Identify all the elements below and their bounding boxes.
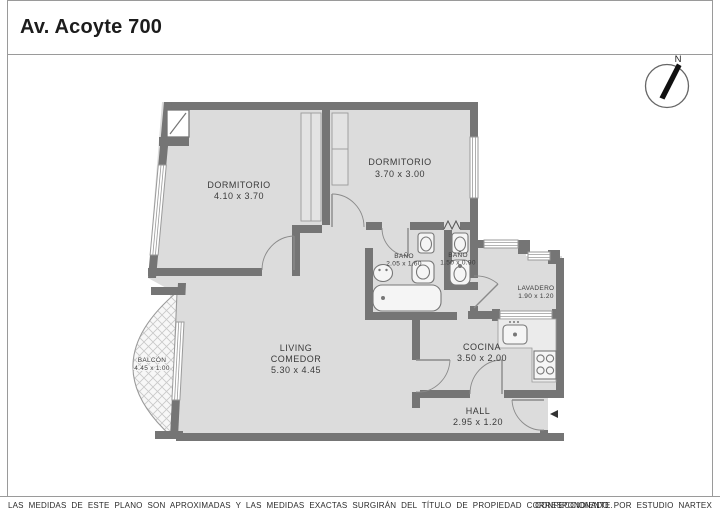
dims-hall: 2.95 x 1.20 xyxy=(453,417,503,427)
entrance-arrow-icon xyxy=(550,410,558,418)
footer-disclaimer: LAS MEDIDAS DE ESTE PLANO SON APROXIMADA… xyxy=(8,501,613,510)
sink-1 xyxy=(418,233,434,253)
dims-balcon: 4.45 x 1.00 xyxy=(134,365,170,372)
dims-lavadero: 1.90 x 1.20 xyxy=(518,293,554,300)
label-balcon: BALCÓN xyxy=(138,355,167,364)
footer-credit: CONFECCIONADO POR ESTUDIO NARTEX xyxy=(535,501,712,510)
label-dormitorio-1: DORMITORIO xyxy=(207,180,270,190)
compass-needle xyxy=(660,64,682,100)
label-living-2: COMEDOR xyxy=(271,354,322,364)
label-hall: HALL xyxy=(466,406,491,416)
dims-living: 5.30 x 4.45 xyxy=(271,365,321,375)
stove xyxy=(534,351,556,379)
label-lavadero: LAVADERO xyxy=(518,285,555,292)
north-compass-icon: N xyxy=(646,54,689,108)
dims-cocina: 3.50 x 2.00 xyxy=(457,353,507,363)
floorplan-drawing: DORMITORIO 4.10 x 3.70 DORMITORIO 3.70 x… xyxy=(0,0,720,515)
bathtub xyxy=(373,285,441,311)
label-living-1: LIVING xyxy=(280,343,313,353)
balcony-top-cap xyxy=(151,287,179,295)
compass-north-label: N xyxy=(675,54,682,65)
dims-bano-1: 2.05 x 1.60 xyxy=(386,261,422,268)
dims-bano-2: 1.50 x 0.90 xyxy=(440,260,476,267)
floorplan-page: Av. Acoyte 700 xyxy=(0,0,720,515)
label-bano-2: BAÑO xyxy=(448,250,468,259)
corner-column xyxy=(167,110,189,137)
dims-dormitorio-1: 4.10 x 3.70 xyxy=(214,191,264,201)
sink-2 xyxy=(452,233,468,253)
dims-dormitorio-2: 3.70 x 3.00 xyxy=(375,169,425,179)
label-bano-1: BAÑO xyxy=(394,251,414,260)
label-cocina: COCINA xyxy=(463,342,501,352)
label-dormitorio-2: DORMITORIO xyxy=(368,157,431,167)
